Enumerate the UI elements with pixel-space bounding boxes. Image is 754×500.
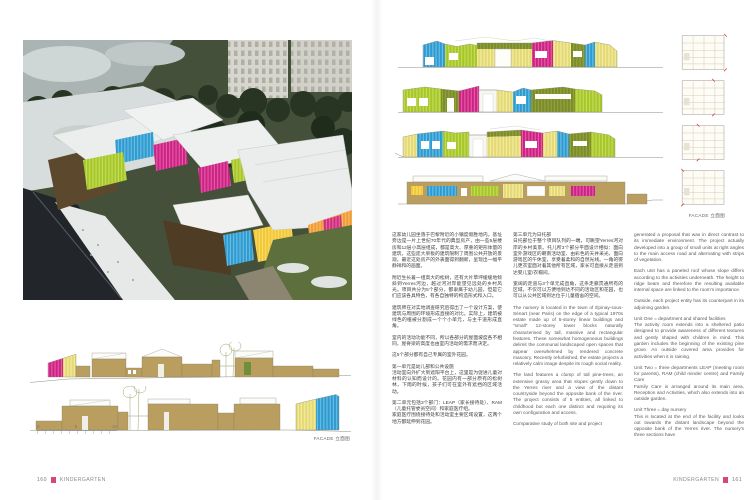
paragraph: Unit Two = three departments LEAP (meeti… (634, 366, 744, 404)
text-column-english: generated a proposal that was in direct … (634, 233, 744, 445)
elevation-drawing-right-1 (395, 33, 667, 73)
facade-drawings-right: FACADE 立面图 (395, 33, 729, 219)
scale-tick-0: 0 (37, 424, 40, 429)
paragraph: generated a proposal that was in direct … (634, 233, 744, 264)
paragraph: 附近生长着一组高大的松树，还有大片草坪缓缓地倾斜到Yerres河边，越过河对岸能… (392, 276, 502, 301)
paragraph: The land features a clump of tall pine-t… (513, 373, 623, 417)
key-plan-4 (679, 168, 729, 208)
paragraph: 第一单元是幼儿部和公共设施 活动室向外扩大到遮阳平台上，这里是为促进儿童对材料的… (392, 365, 502, 396)
facade-label-left: FACADE 立面图 (270, 436, 350, 442)
paragraph: Each unit has a paneled roof whose slope… (634, 269, 744, 294)
facade-row-2 (395, 78, 729, 118)
elevation-drawing-left-1 (30, 342, 352, 384)
paragraph: Outside, each project entity has its cou… (634, 299, 744, 312)
paragraph: 这5个部分都有自己专属的室外花园。 (392, 353, 502, 359)
paragraph: The nursery is located in the town of Ép… (513, 306, 623, 369)
elevation-drawing-right-4 (395, 168, 667, 206)
scale-bar: 0 5 10 (37, 424, 117, 434)
page-footer-left: 160 KINDERGARTEN (37, 477, 106, 483)
aerial-photo-illustration (23, 40, 352, 300)
aerial-photo (23, 40, 352, 300)
paragraph: 第二单元包括3个部门：LEAP（家长接待处）、RAM（儿童托管委员空间）和家庭医… (392, 401, 502, 426)
facade-label-right: FACADE 立面图 (395, 213, 729, 219)
section-color-marker (723, 477, 728, 483)
scale-tick-5: 5 (74, 424, 77, 429)
section-title-right: KINDERGARTEN (673, 477, 719, 483)
section-color-marker (51, 477, 56, 483)
key-plan-2 (679, 78, 729, 118)
paragraph: Unit One = department and shared facilit… (634, 317, 744, 361)
page-number-left: 160 (37, 477, 47, 483)
paragraph: 建筑师在对实地调查研究后得出了一个设计方案，使建筑与周围的环境形成直接的对比。实… (392, 306, 502, 331)
text-column-chinese: 这家幼儿园坐落于巴黎附近的小镇度假胜地内。基址旁边是一片上世纪70年代的典型房产… (392, 233, 502, 445)
section-title-left: KINDERGARTEN (60, 477, 106, 483)
key-plan-3 (679, 123, 729, 163)
scale-tick-10: 10 (112, 424, 117, 429)
paragraph: 第三单元为日托部 日托部位于整个项目队列的一端，可眺望Yerres河对岸的乡村美… (513, 233, 623, 277)
article-text: 这家幼儿园坐落于巴黎附近的小镇度假胜地内。基址旁边是一片上世纪70年代的典型房产… (392, 233, 744, 445)
facade-row-3 (395, 123, 729, 163)
text-column-mixed: 第三单元为日托部 日托部位于整个项目队列的一端，可眺望Yerres河对岸的乡村美… (513, 233, 623, 445)
scale-bar-line (37, 430, 117, 434)
facade-row-4 (395, 168, 729, 208)
elevation-drawing-right-2 (395, 78, 667, 118)
paragraph: 宽阔的走道与3个单元成直角，这条走廊贯通所有的区域，不仅可以方便地到达不同的活动… (513, 282, 623, 301)
book-gutter (371, 0, 383, 500)
key-plan-1 (679, 33, 729, 73)
page-number-right: 161 (732, 477, 742, 483)
paragraph: 室内的活动功能不同，所以各部分的屋面坡度各不相同，屋脊梁的高度也由室内活动的需求… (392, 336, 502, 349)
page-footer-right: KINDERGARTEN 161 (673, 477, 742, 483)
book-spread: 0 5 10 FACADE 立面图 160 KINDERGARTEN (0, 0, 754, 500)
paragraph: Comparative study of both site and proje… (513, 422, 623, 428)
paragraph: Unit Three = day nursery This is located… (634, 408, 744, 439)
facade-row-1 (395, 33, 729, 73)
paragraph: 这家幼儿园坐落于巴黎附近的小镇度假胜地内。基址旁边是一片上世纪70年代的典型房产… (392, 233, 502, 271)
elevation-drawing-right-3 (395, 123, 667, 163)
